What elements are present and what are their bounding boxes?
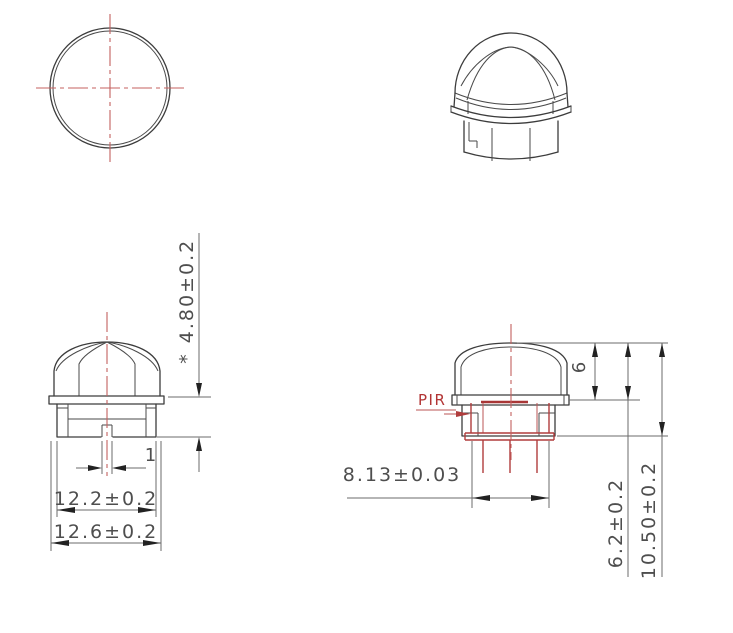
dim-dome-height: 6 bbox=[569, 343, 598, 400]
arrowhead bbox=[472, 495, 490, 501]
pir-leader-line bbox=[416, 410, 457, 414]
sensor-can-inner-lines bbox=[483, 403, 537, 433]
dim-slot-text: 1 bbox=[145, 445, 157, 466]
iso-body-bottom bbox=[464, 152, 558, 159]
front-dome-curve-left-inner bbox=[79, 342, 107, 396]
dim-sensor-text: 8.13±0.03 bbox=[343, 464, 462, 486]
side-body bbox=[462, 405, 555, 436]
arrowhead bbox=[659, 343, 665, 357]
cad-drawing-sheet: 4.80±0.2 * 1 12.2±0.2 12.6±0.2 bbox=[0, 0, 733, 633]
arrowhead bbox=[592, 386, 598, 400]
dim-body-width-text: 12.2±0.2 bbox=[54, 488, 158, 510]
dim-height-text: 4.80±0.2 bbox=[176, 239, 198, 343]
arrowhead bbox=[112, 465, 126, 471]
dim-flange-width-text: 12.6±0.2 bbox=[54, 521, 158, 543]
iso-notch bbox=[469, 122, 477, 148]
iso-body-sides bbox=[464, 121, 558, 152]
iso-band-facets bbox=[468, 101, 553, 114]
pir-label: PIR bbox=[418, 391, 446, 409]
dim-height-asterisk: * bbox=[176, 352, 198, 364]
iso-meridian-2 bbox=[461, 47, 555, 100]
iso-meridian-1 bbox=[467, 47, 558, 100]
arrowhead bbox=[531, 495, 549, 501]
arrowhead bbox=[625, 386, 631, 400]
iso-latitude-1 bbox=[455, 93, 567, 105]
dim-height-extension-lines bbox=[157, 397, 211, 437]
front-dome-curve-right-inner bbox=[107, 342, 135, 396]
dim-front-slot: 1 bbox=[76, 441, 157, 474]
pir-leader-arrowhead bbox=[456, 411, 470, 417]
top-view-circle bbox=[36, 14, 184, 162]
dim-sensor-diameter: 8.13±0.03 bbox=[343, 441, 549, 508]
dim-to-flange-text: 6.2±0.2 bbox=[605, 478, 627, 568]
isometric-view bbox=[451, 33, 571, 161]
dim-front-height: 4.80±0.2 * bbox=[157, 233, 211, 472]
arrowhead bbox=[196, 437, 202, 451]
side-view: PIR 8.13±0.03 6 6.2±0.2 bbox=[343, 324, 668, 579]
iso-body-facets bbox=[492, 128, 530, 161]
drawing-svg: 4.80±0.2 * 1 12.2±0.2 12.6±0.2 bbox=[0, 0, 733, 633]
arrowhead bbox=[88, 465, 102, 471]
iso-latitude-2 bbox=[456, 98, 566, 110]
dim-total-height: 10.50±0.2 bbox=[638, 343, 665, 579]
dim-height-to-flange: 6.2±0.2 bbox=[605, 343, 631, 577]
dim-total-text: 10.50±0.2 bbox=[638, 461, 660, 580]
arrowhead bbox=[592, 343, 598, 357]
sensor-leads bbox=[483, 440, 537, 473]
arrowhead bbox=[196, 383, 202, 397]
arrowhead bbox=[659, 422, 665, 436]
front-view: 4.80±0.2 * 1 12.2±0.2 12.6±0.2 bbox=[49, 233, 211, 551]
arrowhead bbox=[625, 343, 631, 357]
dim-dome-text: 6 bbox=[569, 361, 590, 373]
dim-front-body-width: 12.2±0.2 bbox=[54, 441, 158, 517]
